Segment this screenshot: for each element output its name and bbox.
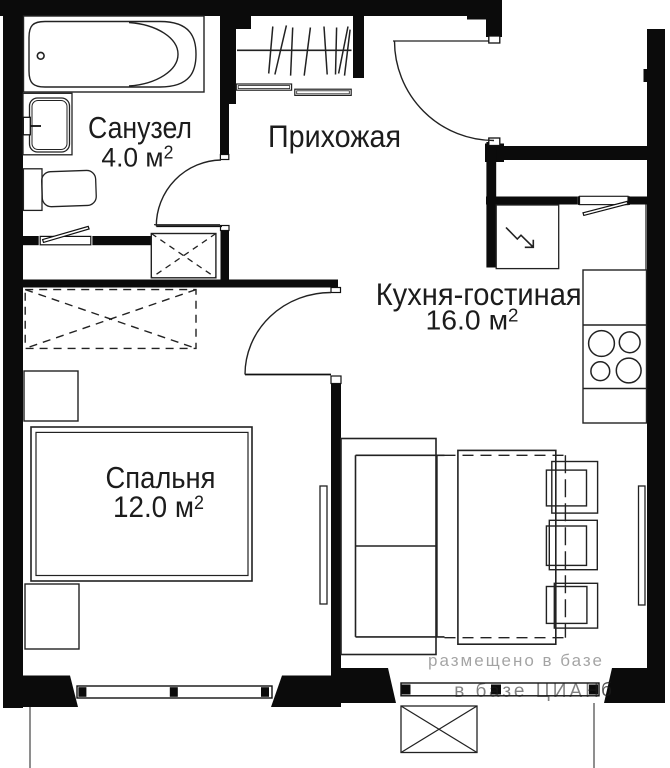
svg-text:12.0 м2: 12.0 м2: [113, 491, 204, 524]
svg-text:размещено в базе: размещено в базе: [428, 651, 604, 670]
svg-text:б: б: [601, 680, 612, 701]
svg-text:Санузел: Санузел: [88, 110, 192, 145]
svg-text:16.0 м2: 16.0 м2: [426, 305, 519, 336]
svg-text:в базе ЦИАН: в базе ЦИАН: [454, 681, 602, 702]
svg-text:Прихожая: Прихожая: [268, 118, 401, 154]
svg-text:4.0 м2: 4.0 м2: [101, 143, 173, 173]
svg-text:Спальня: Спальня: [106, 461, 216, 495]
